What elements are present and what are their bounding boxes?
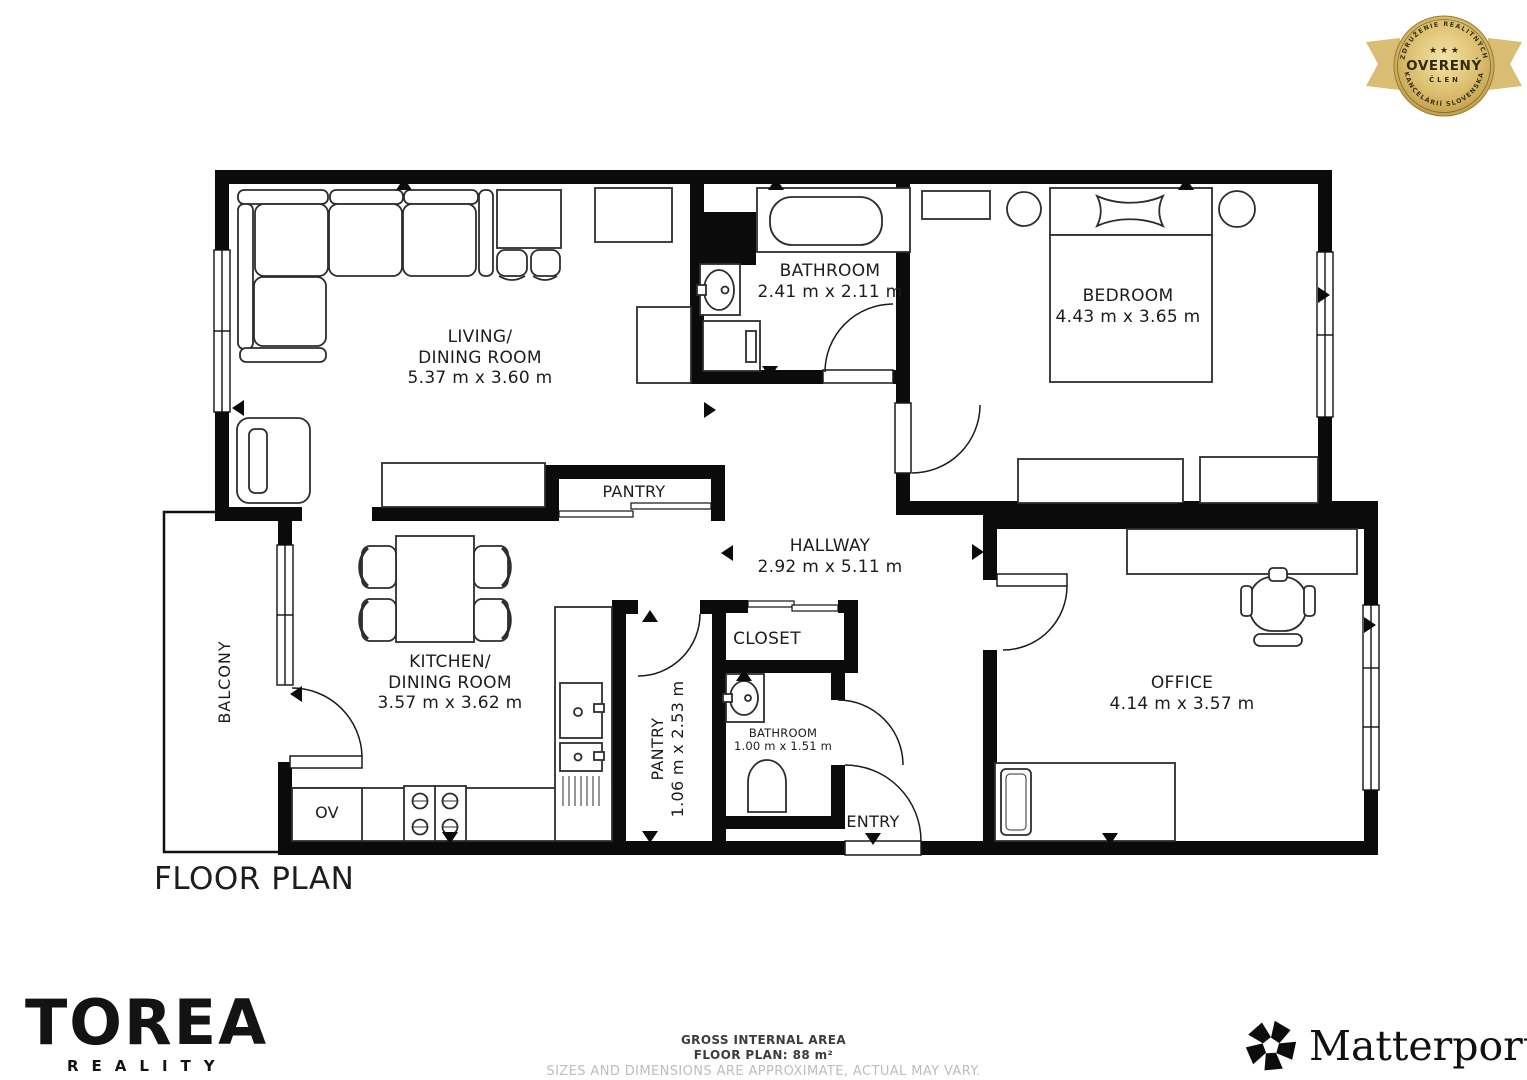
label-line: OV — [302, 803, 352, 823]
dining-table — [396, 536, 474, 642]
badge-title: OVERENÝ — [1406, 56, 1482, 74]
label-line: 1.00 m x 1.51 m — [723, 740, 843, 753]
label-line: ENTRY — [823, 812, 923, 832]
sideboard — [382, 463, 545, 507]
bed-single — [995, 763, 1175, 841]
label-line: LIVING/ — [380, 327, 580, 348]
label-line: 2.92 m x 5.11 m — [730, 557, 930, 578]
kitchen-sink-unit — [555, 607, 612, 841]
label-line: 3.57 m x 3.62 m — [350, 693, 550, 714]
door-entry — [845, 765, 921, 855]
label-line: DINING ROOM — [380, 348, 580, 369]
label-line: DINING ROOM — [350, 673, 550, 694]
label-line: BATHROOM — [730, 261, 930, 282]
cabinet — [1018, 459, 1183, 503]
page-title: FLOOR PLAN — [154, 861, 354, 897]
label-oven: OV — [302, 803, 352, 823]
door-pantry — [638, 614, 700, 676]
cabinet — [1200, 457, 1318, 503]
table-with-stools — [497, 190, 561, 280]
label-kitchen: KITCHEN/ DINING ROOM 3.57 m x 3.62 m — [350, 652, 550, 714]
label-pantry-nook: PANTRY — [559, 482, 709, 502]
label-line: 5.37 m x 3.60 m — [380, 368, 580, 389]
dresser — [922, 191, 990, 219]
desk — [1127, 529, 1357, 574]
closet-slider — [748, 601, 794, 607]
label-line: 4.14 m x 3.57 m — [1082, 694, 1282, 715]
tv-board — [637, 307, 691, 383]
cabinet — [595, 188, 672, 242]
label-line: BEDROOM — [1028, 286, 1228, 307]
label-bathroom-small: BATHROOM 1.00 m x 1.51 m — [723, 727, 843, 753]
nightstand — [1219, 191, 1255, 227]
label-line: BALCONY — [215, 622, 235, 742]
window-kitchen-left — [277, 545, 293, 685]
small-bathroom-sink-icon — [723, 674, 764, 722]
label-line: PANTRY — [648, 674, 668, 824]
verified-badge: ZDRUŽENIE REALITNÝCH KANCELÁRIÍ SLOVENSK… — [1358, 6, 1527, 124]
label-living-room: LIVING/ DINING ROOM 5.37 m x 3.60 m — [380, 327, 580, 389]
label-bathroom: BATHROOM 2.41 m x 2.11 m — [730, 261, 930, 302]
torea-logo: TOREA REALITY — [25, 992, 268, 1075]
toilet-icon — [748, 760, 786, 812]
pantry-nook-slider — [559, 511, 633, 517]
label-line: CLOSET — [717, 629, 817, 650]
bathtub-icon — [757, 188, 910, 252]
armchair — [237, 418, 310, 503]
bed-double — [1050, 188, 1212, 382]
pantry-nook-slider — [631, 503, 711, 509]
door-bedroom — [895, 403, 980, 473]
office-chair-icon — [1241, 568, 1315, 646]
label-pantry: PANTRY 1.06 m x 2.53 m — [648, 674, 688, 824]
floor-plan-page: LIVING/ DINING ROOM 5.37 m x 3.60 m BATH… — [0, 0, 1527, 1080]
washing-machine-icon — [703, 321, 760, 371]
badge-subtitle: ČLEN — [1429, 75, 1461, 84]
label-entry: ENTRY — [823, 812, 923, 832]
label-line: OFFICE — [1082, 673, 1282, 694]
window-office-right — [1363, 605, 1379, 790]
label-office: OFFICE 4.14 m x 3.57 m — [1082, 673, 1282, 714]
label-hallway: HALLWAY 2.92 m x 5.11 m — [730, 536, 930, 577]
label-line: 4.43 m x 3.65 m — [1028, 307, 1228, 328]
duct-shaft — [704, 212, 756, 265]
label-balcony: BALCONY — [215, 622, 235, 742]
torea-wordmark: TOREA — [25, 992, 268, 1054]
door-office — [997, 574, 1067, 650]
door-bathroom — [823, 304, 893, 383]
window-living-left — [214, 250, 230, 412]
window-bedroom-right — [1317, 252, 1333, 417]
matterport-wordmark: Matterport — [1309, 1022, 1527, 1070]
label-line: KITCHEN/ — [350, 652, 550, 673]
label-line: 2.41 m x 2.11 m — [730, 282, 930, 303]
matterport-pinwheel-icon — [1243, 1018, 1299, 1074]
label-line: PANTRY — [559, 482, 709, 502]
torea-subtitle: REALITY — [25, 1057, 268, 1075]
matterport-logo: Matterport ® — [1243, 1018, 1527, 1074]
label-line: HALLWAY — [730, 536, 930, 557]
badge-stars: ★ ★ ★ — [1429, 46, 1459, 56]
door-bathroom-small — [838, 700, 903, 765]
closet-slider — [792, 605, 838, 611]
nightstand — [1007, 192, 1041, 226]
label-bedroom: BEDROOM 4.43 m x 3.65 m — [1028, 286, 1228, 327]
label-line: 1.06 m x 2.53 m — [668, 674, 688, 824]
label-closet: CLOSET — [717, 629, 817, 650]
